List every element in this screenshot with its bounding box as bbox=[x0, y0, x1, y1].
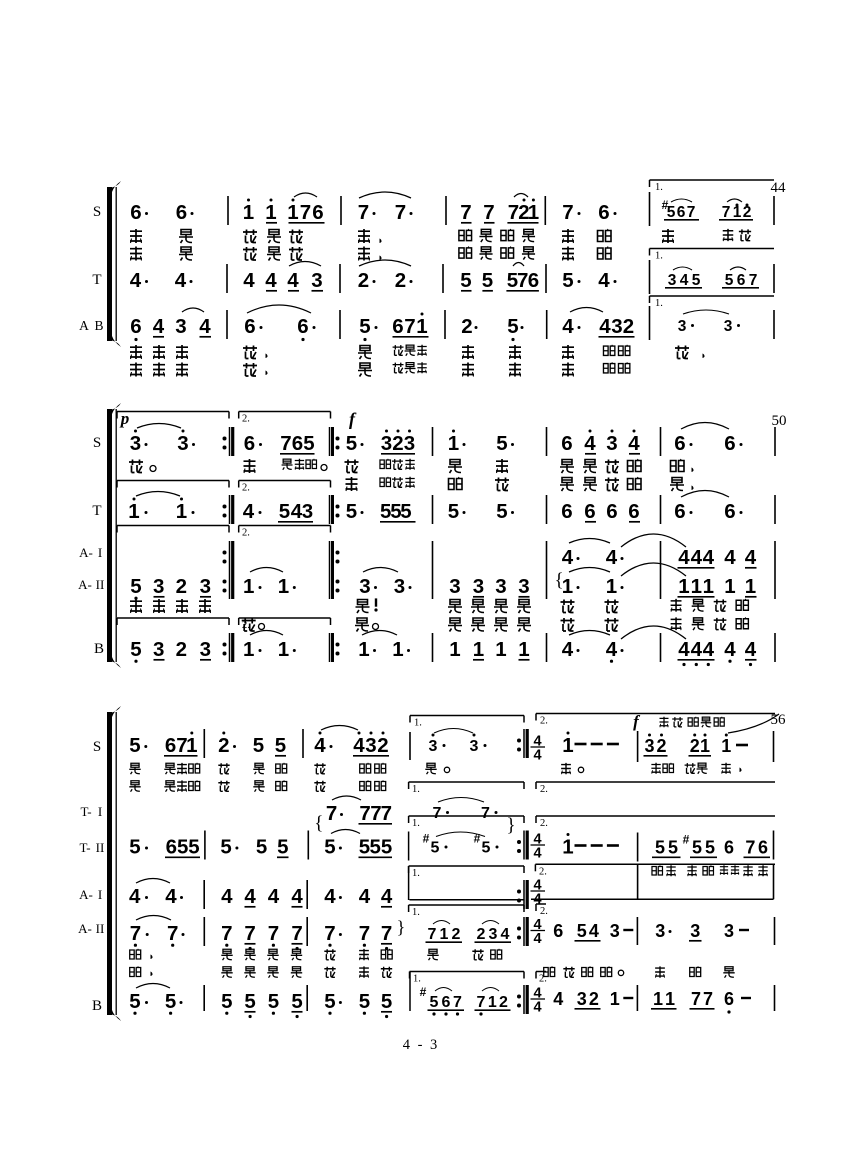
svg-text:S: S bbox=[93, 739, 101, 755]
svg-text:2.: 2. bbox=[540, 906, 548, 917]
svg-text:4: 4 bbox=[703, 638, 715, 661]
svg-text:1: 1 bbox=[186, 734, 197, 757]
svg-text:4: 4 bbox=[314, 734, 326, 757]
svg-text:2: 2 bbox=[452, 926, 461, 943]
svg-text:6: 6 bbox=[677, 204, 686, 221]
svg-text:7: 7 bbox=[453, 994, 462, 1011]
svg-text:1: 1 bbox=[265, 201, 276, 224]
svg-text:1: 1 bbox=[287, 201, 298, 224]
svg-text:p: p bbox=[119, 409, 130, 428]
svg-text:3: 3 bbox=[724, 318, 733, 335]
svg-text:6: 6 bbox=[737, 272, 746, 289]
svg-text:3: 3 bbox=[449, 575, 460, 598]
svg-text:1.: 1. bbox=[412, 907, 420, 918]
svg-text:7: 7 bbox=[324, 922, 335, 945]
svg-text:5: 5 bbox=[431, 840, 440, 857]
svg-text:5: 5 bbox=[324, 836, 335, 859]
svg-text:7: 7 bbox=[749, 272, 758, 289]
svg-text:7: 7 bbox=[691, 989, 701, 1009]
svg-text:7: 7 bbox=[722, 204, 731, 221]
svg-text:3: 3 bbox=[606, 432, 617, 455]
svg-text:7: 7 bbox=[703, 989, 713, 1009]
svg-text:3: 3 bbox=[611, 315, 622, 338]
svg-text:3: 3 bbox=[200, 575, 211, 598]
svg-text:7: 7 bbox=[517, 269, 528, 292]
svg-text:3: 3 bbox=[302, 500, 313, 523]
svg-text:II: II bbox=[96, 921, 105, 936]
svg-text:5: 5 bbox=[562, 269, 573, 292]
svg-text:4: 4 bbox=[680, 272, 689, 289]
svg-text:1: 1 bbox=[653, 989, 663, 1009]
svg-text:3: 3 bbox=[644, 736, 654, 756]
svg-text:2.: 2. bbox=[540, 716, 548, 727]
svg-text:1: 1 bbox=[243, 575, 254, 598]
svg-text:6: 6 bbox=[758, 838, 768, 858]
svg-text:2.: 2. bbox=[539, 974, 547, 985]
svg-text:#: # bbox=[683, 833, 690, 847]
svg-text:1.: 1. bbox=[413, 974, 421, 985]
svg-text:4: 4 bbox=[268, 885, 280, 908]
svg-text:I: I bbox=[98, 545, 102, 560]
svg-text:1: 1 bbox=[610, 989, 620, 1009]
svg-text:1: 1 bbox=[176, 500, 187, 523]
svg-text:4: 4 bbox=[724, 546, 736, 569]
svg-text:7: 7 bbox=[395, 201, 406, 224]
svg-text:4: 4 bbox=[533, 931, 541, 947]
svg-text:1: 1 bbox=[243, 201, 254, 224]
svg-text:7: 7 bbox=[221, 922, 232, 945]
svg-text:4: 4 bbox=[359, 885, 371, 908]
svg-text:7: 7 bbox=[280, 432, 291, 455]
svg-text:6: 6 bbox=[561, 432, 572, 455]
svg-text:5: 5 bbox=[129, 990, 140, 1013]
svg-text:4: 4 bbox=[562, 638, 574, 661]
svg-text:4: 4 bbox=[691, 546, 703, 569]
svg-text:1: 1 bbox=[703, 575, 714, 598]
svg-text:4: 4 bbox=[287, 269, 299, 292]
svg-text:A-: A- bbox=[78, 921, 92, 936]
svg-text:5: 5 bbox=[129, 836, 140, 859]
svg-text:5: 5 bbox=[324, 990, 335, 1013]
svg-text:1: 1 bbox=[724, 575, 735, 598]
svg-text:56: 56 bbox=[771, 712, 787, 728]
svg-text:4: 4 bbox=[678, 546, 690, 569]
svg-text:2: 2 bbox=[623, 315, 634, 338]
svg-text:6: 6 bbox=[584, 500, 595, 523]
svg-text:1.: 1. bbox=[655, 298, 663, 309]
svg-text:1: 1 bbox=[518, 638, 529, 661]
svg-text:3: 3 bbox=[200, 638, 211, 661]
svg-text:5: 5 bbox=[460, 269, 471, 292]
svg-text:7: 7 bbox=[167, 922, 178, 945]
svg-text:7: 7 bbox=[326, 802, 337, 825]
svg-text:7: 7 bbox=[300, 201, 311, 224]
svg-text:1: 1 bbox=[665, 989, 675, 1009]
svg-text:II: II bbox=[96, 577, 105, 592]
svg-text:5: 5 bbox=[129, 734, 140, 757]
svg-text:5: 5 bbox=[668, 838, 678, 858]
svg-text:7: 7 bbox=[687, 204, 696, 221]
svg-text:5: 5 bbox=[507, 315, 518, 338]
svg-text:1: 1 bbox=[678, 575, 689, 598]
svg-text:6: 6 bbox=[553, 921, 563, 941]
svg-text:T-: T- bbox=[80, 804, 91, 819]
svg-text:6: 6 bbox=[244, 432, 255, 455]
svg-text:3: 3 bbox=[394, 575, 405, 598]
svg-text:5: 5 bbox=[130, 638, 141, 661]
svg-text:T-: T- bbox=[79, 840, 90, 855]
svg-text:7: 7 bbox=[358, 201, 369, 224]
svg-text:}: } bbox=[506, 815, 515, 836]
svg-text:5: 5 bbox=[253, 734, 264, 757]
svg-text:1: 1 bbox=[691, 575, 702, 598]
svg-text:5: 5 bbox=[430, 994, 439, 1011]
svg-text:2.: 2. bbox=[539, 866, 547, 877]
svg-text:4: 4 bbox=[243, 500, 255, 523]
svg-text:7: 7 bbox=[483, 201, 494, 224]
svg-text:5: 5 bbox=[725, 272, 734, 289]
svg-text:3: 3 bbox=[668, 272, 677, 289]
svg-text:5: 5 bbox=[275, 734, 286, 757]
svg-text:3: 3 bbox=[610, 921, 620, 941]
svg-text:6: 6 bbox=[724, 989, 734, 1009]
svg-text:3: 3 bbox=[177, 432, 188, 455]
svg-text:5: 5 bbox=[381, 990, 392, 1013]
svg-text:4: 4 bbox=[703, 546, 715, 569]
svg-text:7: 7 bbox=[359, 802, 370, 825]
svg-text:1: 1 bbox=[416, 315, 427, 338]
svg-text:5: 5 bbox=[692, 838, 702, 858]
svg-text:2: 2 bbox=[477, 926, 486, 943]
svg-text:6: 6 bbox=[674, 500, 685, 523]
svg-text:6: 6 bbox=[392, 315, 403, 338]
svg-text:5: 5 bbox=[482, 269, 493, 292]
svg-text:5: 5 bbox=[177, 836, 188, 859]
svg-text:5: 5 bbox=[220, 836, 231, 859]
svg-text:#: # bbox=[420, 985, 427, 999]
svg-text:1.: 1. bbox=[412, 784, 420, 795]
svg-text:5: 5 bbox=[692, 272, 701, 289]
svg-text:3: 3 bbox=[404, 432, 415, 455]
svg-text:7: 7 bbox=[130, 922, 141, 945]
svg-text:5: 5 bbox=[369, 836, 380, 859]
svg-text:5: 5 bbox=[667, 204, 676, 221]
svg-text:4: 4 bbox=[606, 638, 618, 661]
svg-text:1: 1 bbox=[128, 500, 139, 523]
svg-text:4: 4 bbox=[501, 926, 510, 943]
svg-text:4: 4 bbox=[381, 885, 393, 908]
svg-text:5: 5 bbox=[655, 838, 665, 858]
svg-text:3: 3 bbox=[359, 575, 370, 598]
svg-text:1: 1 bbox=[392, 638, 403, 661]
svg-text:{: { bbox=[314, 813, 323, 834]
svg-text:6: 6 bbox=[297, 315, 308, 338]
svg-text:5: 5 bbox=[359, 315, 370, 338]
svg-text:4: 4 bbox=[606, 546, 618, 569]
svg-text:5: 5 bbox=[165, 990, 176, 1013]
svg-text:1: 1 bbox=[358, 638, 369, 661]
svg-text:4: 4 bbox=[533, 846, 541, 862]
svg-text:7: 7 bbox=[562, 201, 573, 224]
svg-text:4: 4 bbox=[324, 885, 336, 908]
svg-text:6: 6 bbox=[724, 432, 735, 455]
svg-text:4: 4 bbox=[243, 269, 255, 292]
svg-text:5: 5 bbox=[359, 990, 370, 1013]
svg-text:6: 6 bbox=[312, 201, 323, 224]
svg-text:1: 1 bbox=[243, 638, 254, 661]
svg-text:5: 5 bbox=[448, 500, 459, 523]
svg-text:7: 7 bbox=[268, 922, 279, 945]
svg-text:1: 1 bbox=[562, 575, 573, 598]
svg-text:3: 3 bbox=[655, 921, 665, 941]
svg-text:4: 4 bbox=[353, 734, 365, 757]
svg-text:50: 50 bbox=[772, 413, 787, 429]
svg-text:6: 6 bbox=[528, 269, 539, 292]
svg-text:1: 1 bbox=[745, 575, 756, 598]
svg-text:5: 5 bbox=[303, 432, 314, 455]
svg-text:4: 4 bbox=[599, 315, 611, 338]
svg-text:5: 5 bbox=[705, 838, 715, 858]
svg-text:1: 1 bbox=[448, 432, 459, 455]
svg-text:4: 4 bbox=[129, 885, 141, 908]
svg-text:4: 4 bbox=[533, 1000, 541, 1016]
svg-text:T: T bbox=[92, 503, 101, 519]
svg-text:2: 2 bbox=[589, 989, 599, 1009]
svg-text:6: 6 bbox=[165, 734, 176, 757]
svg-text:A-: A- bbox=[79, 545, 93, 560]
svg-text:1: 1 bbox=[562, 836, 573, 859]
svg-text:7: 7 bbox=[381, 802, 392, 825]
svg-text:4: 4 bbox=[291, 885, 303, 908]
svg-text:6: 6 bbox=[598, 201, 609, 224]
svg-text:4: 4 bbox=[628, 432, 640, 455]
svg-text:5: 5 bbox=[482, 840, 491, 857]
svg-text:5: 5 bbox=[277, 836, 288, 859]
svg-text:4: 4 bbox=[153, 315, 165, 338]
svg-text:1: 1 bbox=[562, 734, 573, 757]
svg-text:6: 6 bbox=[724, 500, 735, 523]
svg-text:7: 7 bbox=[433, 805, 442, 822]
svg-text:2.: 2. bbox=[540, 784, 548, 795]
svg-text:I: I bbox=[98, 887, 102, 902]
svg-text:II: II bbox=[96, 840, 105, 855]
svg-text:1: 1 bbox=[488, 994, 497, 1011]
svg-text:1: 1 bbox=[449, 638, 460, 661]
svg-text:6: 6 bbox=[130, 315, 141, 338]
svg-text:6: 6 bbox=[628, 500, 639, 523]
svg-text:4: 4 bbox=[562, 546, 574, 569]
svg-text:3: 3 bbox=[175, 315, 186, 338]
svg-text:5: 5 bbox=[268, 990, 279, 1013]
svg-text:3: 3 bbox=[153, 638, 164, 661]
svg-text:6: 6 bbox=[166, 836, 177, 859]
svg-text:3: 3 bbox=[724, 921, 734, 941]
svg-text:6: 6 bbox=[176, 201, 187, 224]
svg-text:7: 7 bbox=[428, 926, 437, 943]
svg-text:1: 1 bbox=[473, 638, 484, 661]
svg-text:7: 7 bbox=[460, 201, 471, 224]
svg-text:2: 2 bbox=[377, 734, 388, 757]
svg-text:I: I bbox=[98, 804, 102, 819]
svg-text:5: 5 bbox=[346, 500, 357, 523]
svg-text:4: 4 bbox=[265, 269, 277, 292]
svg-text:3: 3 bbox=[690, 921, 700, 941]
svg-text:6: 6 bbox=[292, 432, 303, 455]
svg-text:7: 7 bbox=[359, 922, 370, 945]
svg-text:1: 1 bbox=[721, 736, 731, 756]
svg-text:4: 4 bbox=[221, 885, 233, 908]
svg-text:}: } bbox=[397, 917, 406, 937]
svg-text:4: 4 bbox=[745, 638, 757, 661]
svg-text:4: 4 bbox=[745, 546, 757, 569]
svg-text:2: 2 bbox=[395, 269, 406, 292]
svg-text:2: 2 bbox=[499, 994, 508, 1011]
svg-text:1: 1 bbox=[528, 201, 539, 224]
svg-text:7: 7 bbox=[477, 994, 486, 1011]
svg-text:4: 4 bbox=[553, 989, 563, 1009]
svg-text:2.: 2. bbox=[242, 414, 250, 425]
svg-text:5: 5 bbox=[291, 990, 302, 1013]
svg-text:2: 2 bbox=[392, 432, 403, 455]
svg-text:3: 3 bbox=[153, 575, 164, 598]
svg-text:6: 6 bbox=[244, 315, 255, 338]
svg-text:2: 2 bbox=[176, 575, 187, 598]
svg-text:1.: 1. bbox=[412, 868, 420, 879]
svg-text:3: 3 bbox=[518, 575, 529, 598]
svg-text:3: 3 bbox=[429, 738, 438, 755]
svg-text:3: 3 bbox=[470, 738, 479, 755]
svg-text:7: 7 bbox=[481, 805, 490, 822]
svg-text:7: 7 bbox=[291, 922, 302, 945]
svg-text:4: 4 bbox=[598, 269, 610, 292]
svg-text:5: 5 bbox=[221, 990, 232, 1013]
svg-text:2: 2 bbox=[743, 204, 752, 221]
svg-text:4: 4 bbox=[130, 269, 142, 292]
svg-text:5: 5 bbox=[279, 500, 290, 523]
svg-text:6: 6 bbox=[130, 201, 141, 224]
svg-text:T: T bbox=[92, 272, 101, 288]
svg-text:2: 2 bbox=[461, 315, 472, 338]
svg-text:3: 3 bbox=[130, 432, 141, 455]
svg-text:3: 3 bbox=[489, 926, 498, 943]
svg-text:5: 5 bbox=[496, 432, 507, 455]
svg-text:5: 5 bbox=[359, 836, 370, 859]
svg-text:3: 3 bbox=[473, 575, 484, 598]
svg-text:6: 6 bbox=[606, 500, 617, 523]
svg-text:#: # bbox=[423, 832, 430, 846]
svg-text:2: 2 bbox=[690, 736, 700, 756]
svg-text:1.: 1. bbox=[414, 718, 422, 729]
svg-text:3: 3 bbox=[381, 432, 392, 455]
svg-text:6: 6 bbox=[674, 432, 685, 455]
svg-text:A-: A- bbox=[78, 577, 92, 592]
svg-text:4: 4 bbox=[724, 638, 736, 661]
svg-text:5: 5 bbox=[244, 990, 255, 1013]
svg-text:1: 1 bbox=[733, 204, 742, 221]
svg-text:4: 4 bbox=[678, 638, 690, 661]
svg-text:B: B bbox=[92, 998, 102, 1014]
svg-text:2.: 2. bbox=[242, 528, 250, 539]
svg-text:2.: 2. bbox=[242, 483, 250, 494]
svg-text:2.: 2. bbox=[242, 620, 250, 631]
svg-text:1: 1 bbox=[440, 926, 449, 943]
svg-text:3: 3 bbox=[495, 575, 506, 598]
svg-text:6: 6 bbox=[561, 500, 572, 523]
svg-text:A-: A- bbox=[79, 887, 93, 902]
svg-text:1.: 1. bbox=[655, 251, 663, 262]
svg-text:1.: 1. bbox=[412, 818, 420, 829]
svg-text:3: 3 bbox=[577, 989, 587, 1009]
svg-text:4: 4 bbox=[691, 638, 703, 661]
svg-text:S: S bbox=[93, 204, 101, 220]
svg-text:2: 2 bbox=[656, 736, 666, 756]
svg-text:4: 4 bbox=[533, 748, 541, 764]
svg-text:1: 1 bbox=[278, 575, 289, 598]
svg-text:5: 5 bbox=[400, 500, 411, 523]
svg-text:4: 4 bbox=[244, 885, 256, 908]
svg-text:5: 5 bbox=[381, 836, 392, 859]
svg-text:5: 5 bbox=[256, 836, 267, 859]
svg-text:2: 2 bbox=[358, 269, 369, 292]
svg-text:3: 3 bbox=[678, 318, 687, 335]
svg-text:4: 4 bbox=[562, 315, 574, 338]
svg-text:3: 3 bbox=[365, 734, 376, 757]
svg-text:2: 2 bbox=[218, 734, 229, 757]
svg-text:7: 7 bbox=[381, 922, 392, 945]
svg-text:2: 2 bbox=[176, 638, 187, 661]
svg-text:6: 6 bbox=[724, 838, 734, 858]
svg-text:5: 5 bbox=[577, 921, 587, 941]
svg-text:6: 6 bbox=[442, 994, 451, 1011]
svg-text:1: 1 bbox=[495, 638, 506, 661]
svg-text:3: 3 bbox=[311, 269, 322, 292]
svg-text:4: 4 bbox=[584, 432, 596, 455]
svg-text:7: 7 bbox=[745, 838, 755, 858]
svg-text:4: 4 bbox=[165, 885, 177, 908]
svg-text:5: 5 bbox=[346, 432, 357, 455]
svg-text:5: 5 bbox=[496, 500, 507, 523]
svg-text:B: B bbox=[94, 318, 103, 333]
svg-text:1: 1 bbox=[700, 736, 710, 756]
svg-text:7: 7 bbox=[404, 315, 415, 338]
svg-text:1: 1 bbox=[278, 638, 289, 661]
svg-text:7: 7 bbox=[244, 922, 255, 945]
svg-text:B: B bbox=[94, 641, 104, 657]
svg-text:S: S bbox=[93, 435, 101, 451]
svg-text:4: 4 bbox=[175, 269, 187, 292]
svg-text:2.: 2. bbox=[540, 818, 548, 829]
svg-text:4 - 3: 4 - 3 bbox=[403, 1037, 440, 1053]
svg-text:1: 1 bbox=[606, 575, 617, 598]
svg-text:A: A bbox=[79, 318, 89, 333]
svg-text:5: 5 bbox=[188, 836, 199, 859]
svg-text:4: 4 bbox=[199, 315, 211, 338]
svg-text:44: 44 bbox=[771, 180, 787, 196]
svg-text:1.: 1. bbox=[655, 182, 663, 193]
svg-text:5: 5 bbox=[130, 575, 141, 598]
svg-text:4: 4 bbox=[589, 921, 599, 941]
